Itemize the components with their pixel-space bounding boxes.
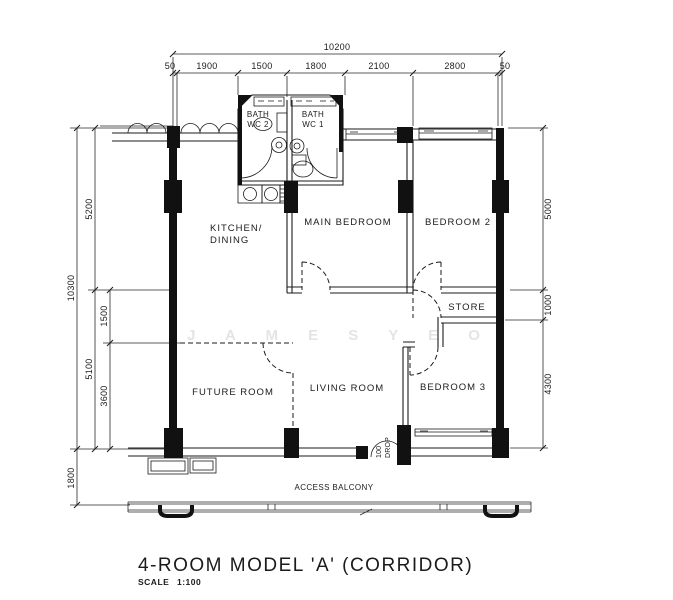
- floorplan-svg: J A M E S Y E O: [0, 0, 673, 600]
- dim-left-upper: 5200: [84, 198, 94, 219]
- dim-seg-50-right: 50: [500, 61, 511, 71]
- label-bath2-line2: WC 2: [247, 120, 269, 129]
- label-future-room: FUTURE ROOM: [192, 387, 274, 398]
- label-drop-line2: DROP: [385, 437, 392, 458]
- scale-label: SCALE: [138, 577, 169, 587]
- dim-left-balcony: 1800: [66, 467, 76, 488]
- watermark-text: J A M E S Y E O: [187, 327, 493, 344]
- label-bath1-line1: BATH: [302, 110, 324, 119]
- dim-seg-2800: 2800: [444, 61, 465, 71]
- dim-left-inner-upper: 1500: [99, 305, 109, 326]
- room-labels: KITCHEN/ DINING MAIN BEDROOM BEDROOM 2 S…: [192, 110, 491, 492]
- label-drop-line1: 100: [376, 446, 383, 458]
- label-access-balcony: ACCESS BALCONY: [295, 483, 374, 492]
- dim-right-lower: 4300: [543, 373, 553, 394]
- dim-seg-50-left: 50: [165, 61, 176, 71]
- scale-value: 1:100: [177, 577, 201, 587]
- railing-notches-layer: [160, 505, 517, 516]
- label-bath1-line2: WC 1: [302, 120, 324, 129]
- dim-seg-1900: 1900: [196, 61, 217, 71]
- plan-title: 4-ROOM MODEL 'A' (CORRIDOR): [138, 555, 473, 576]
- label-kitchen-line1: KITCHEN/: [210, 223, 262, 234]
- dimension-labels: 10200 50 1900 1500 1800 2100 2800 50 103…: [66, 42, 553, 489]
- columns-layer: [164, 95, 509, 465]
- label-kitchen-line2: DINING: [210, 235, 249, 246]
- label-bedroom3: BEDROOM 3: [420, 382, 486, 393]
- floorplan-sheet: J A M E S Y E O: [0, 0, 673, 600]
- label-bath2-line1: BATH: [247, 110, 269, 119]
- dim-right-middle: 1000: [543, 294, 553, 315]
- dim-seg-1800: 1800: [305, 61, 326, 71]
- dim-seg-2100: 2100: [368, 61, 389, 71]
- label-store: STORE: [448, 302, 486, 313]
- label-main-bedroom: MAIN BEDROOM: [304, 217, 391, 228]
- label-living-room: LIVING ROOM: [310, 383, 384, 394]
- title-block: 4-ROOM MODEL 'A' (CORRIDOR) SCALE 1:100: [138, 555, 473, 587]
- dim-overall-width: 10200: [324, 42, 351, 52]
- label-bedroom2: BEDROOM 2: [425, 217, 491, 228]
- windows-fixtures-layer: [128, 97, 492, 474]
- dim-seg-1500: 1500: [251, 61, 272, 71]
- dim-left-inner-lower: 3600: [99, 385, 109, 406]
- dim-right-upper: 5000: [543, 198, 553, 219]
- dim-left-lower: 5100: [84, 358, 94, 379]
- dim-left-overall: 10300: [66, 275, 76, 302]
